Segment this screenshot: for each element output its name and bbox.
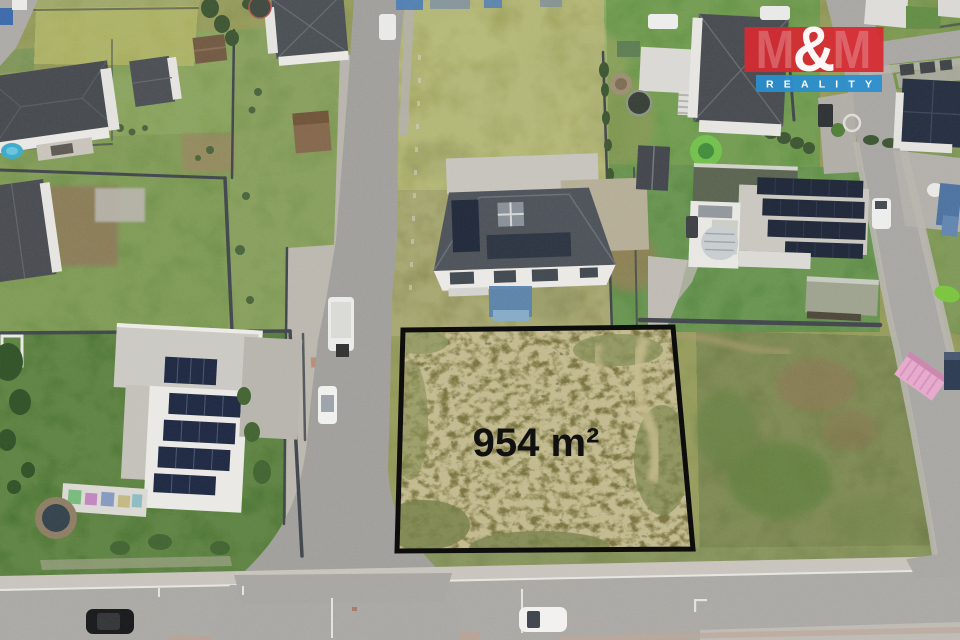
svg-text:&: & xyxy=(793,14,836,86)
svg-text:M: M xyxy=(833,19,872,80)
svg-text:M: M xyxy=(756,19,795,80)
